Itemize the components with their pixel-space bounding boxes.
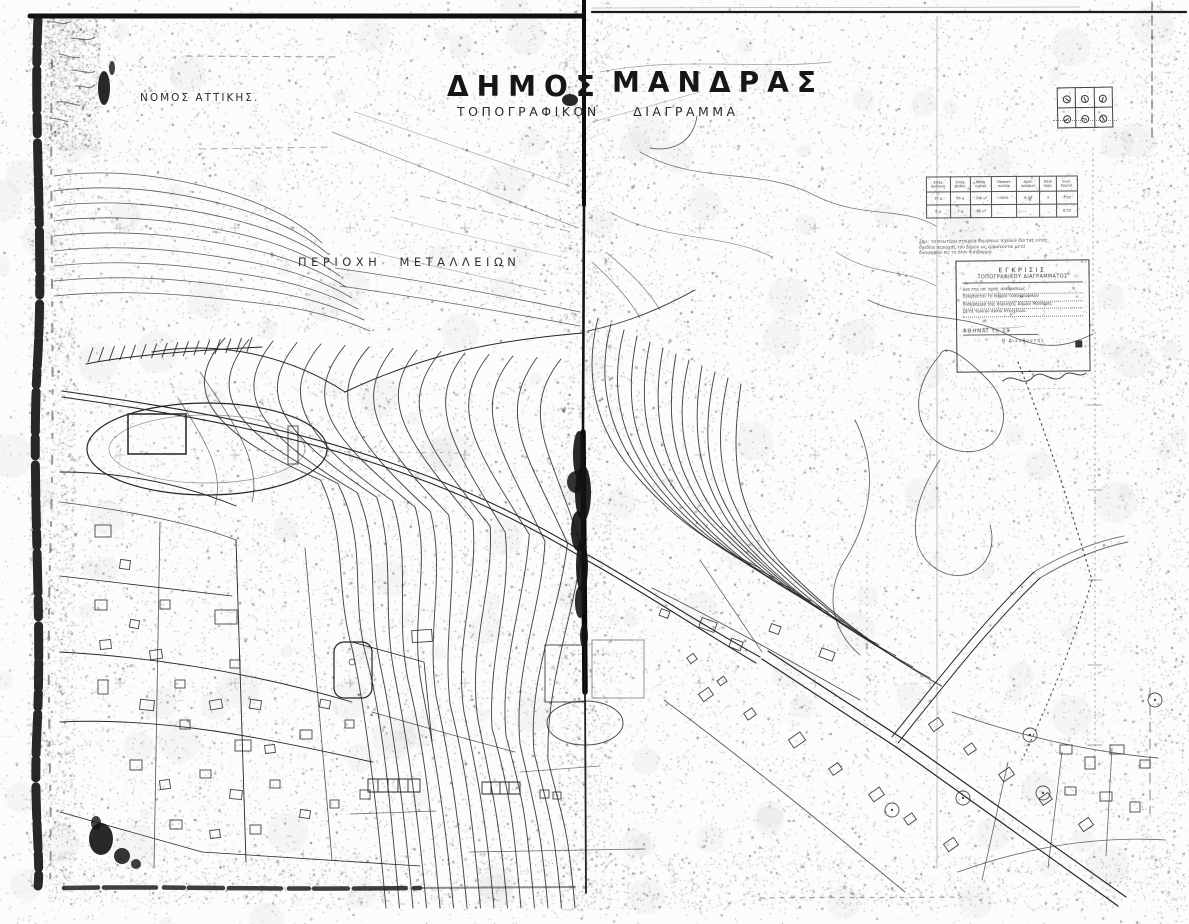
- seal-icon: [1098, 114, 1108, 124]
- approval-seal-grid: [1057, 87, 1114, 129]
- approval-stamp-box: ΕΓΚΡΙΣΙΣ ΤΟΠΟΓΡΑΦΙΚΟΥ ΔΙΑΓΡΑΜΜΑΤΟΣ Δια τ…: [955, 259, 1090, 372]
- ink-blotches: [89, 61, 591, 869]
- stamp-ink-square: [1075, 340, 1082, 347]
- reg-col-header: Αριθ. ορόφων: [1017, 176, 1040, 191]
- contour-lines-right: [592, 252, 947, 689]
- reg-col-header: Μέγ. ύψος: [1039, 176, 1056, 191]
- mining-area-label: ΠΕΡΙΟΧΗ ΜΕΤΑΛΛΕΙΩΝ: [298, 255, 520, 269]
- reg-cell: [1017, 204, 1040, 217]
- page-fold-and-border-lines: [30, 0, 1186, 898]
- contour-lines-upper-left: [54, 173, 695, 392]
- roads: [62, 391, 1128, 906]
- reg-cell: 8,50: [1056, 204, 1077, 217]
- reg-col-header: Ελάχ. εμβαδ.: [971, 177, 992, 192]
- reg-col-header: Συντ. δομήσ.: [1056, 176, 1077, 191]
- town-blocks-left: [60, 346, 645, 868]
- seal-grid-caption-rule: [1053, 120, 1117, 121]
- building-regulations-table: Ελάχ. πρόσωπ. Ελάχ. βάθος Ελάχ. εμβαδ. Π…: [926, 175, 1078, 218]
- seal-icon: [1079, 94, 1090, 105]
- reg-cell: [1040, 204, 1057, 217]
- reg-cell: 80 μ²: [971, 205, 992, 218]
- stamp-heading: ΕΓΚΡΙΣΙΣ: [962, 265, 1082, 274]
- prefecture-label: ΝΟΜΟΣ ΑΤΤΙΚΗΣ.: [140, 92, 259, 104]
- map-subtitle: ΤΟΠΟΓΡΑΦΙΚΟΝ ΔΙΑΓΡΑΜΜΑ: [457, 104, 739, 119]
- stamp-date-line: ΑΘΗΝΑΙ τη 19: [963, 327, 1039, 335]
- seal-icon: [1062, 95, 1070, 103]
- regulations-footnote: Σημ.: τα ανωτέρω στοιχεία δομήσεως ισχύο…: [919, 237, 1095, 256]
- reg-col-header: Ελάχ. βάθος: [951, 177, 971, 192]
- topographic-map-drawing: [0, 0, 1189, 924]
- stamp-signer-line: Ο Διευθυντής: [963, 338, 1083, 344]
- reg-col-header: Ποσοστ. καλύψ.: [992, 176, 1017, 191]
- town-blocks-right: [545, 556, 1166, 892]
- reg-cell: 60%: [992, 191, 1017, 204]
- map-title-word-2: ΜΑΝΔΡΑΣ: [612, 66, 824, 99]
- reg-cell: 2,00: [1017, 191, 1040, 204]
- map-title-word-1: ΔΗΜΟΣ: [447, 70, 603, 103]
- reg-cell: 16 μ.: [951, 192, 971, 205]
- reg-cell: 10 μ.: [926, 192, 950, 205]
- reg-cell: [992, 204, 1017, 217]
- seal-icon: [1080, 114, 1091, 125]
- reg-cell: 7 μ.: [951, 205, 971, 218]
- reg-cell: 3: [1040, 191, 1057, 204]
- reg-col-header: Ελάχ. πρόσωπ.: [926, 177, 950, 192]
- reg-cell: 8 μ.: [927, 205, 951, 218]
- stamp-body-line: μετά των εν αυτώ στοιχείων.: [963, 309, 1083, 318]
- reg-cell: 300 μ²: [971, 192, 992, 205]
- reg-cell: 7,50: [1056, 191, 1077, 204]
- scanned-topographic-map-page: ΔΗΜΟΣ ΜΑΝΔΡΑΣ ΤΟΠΟΓΡΑΦΙΚΟΝ ΔΙΑΓΡΑΜΜΑ ΝΟΜ…: [0, 0, 1189, 924]
- seal-icon: [1098, 94, 1108, 104]
